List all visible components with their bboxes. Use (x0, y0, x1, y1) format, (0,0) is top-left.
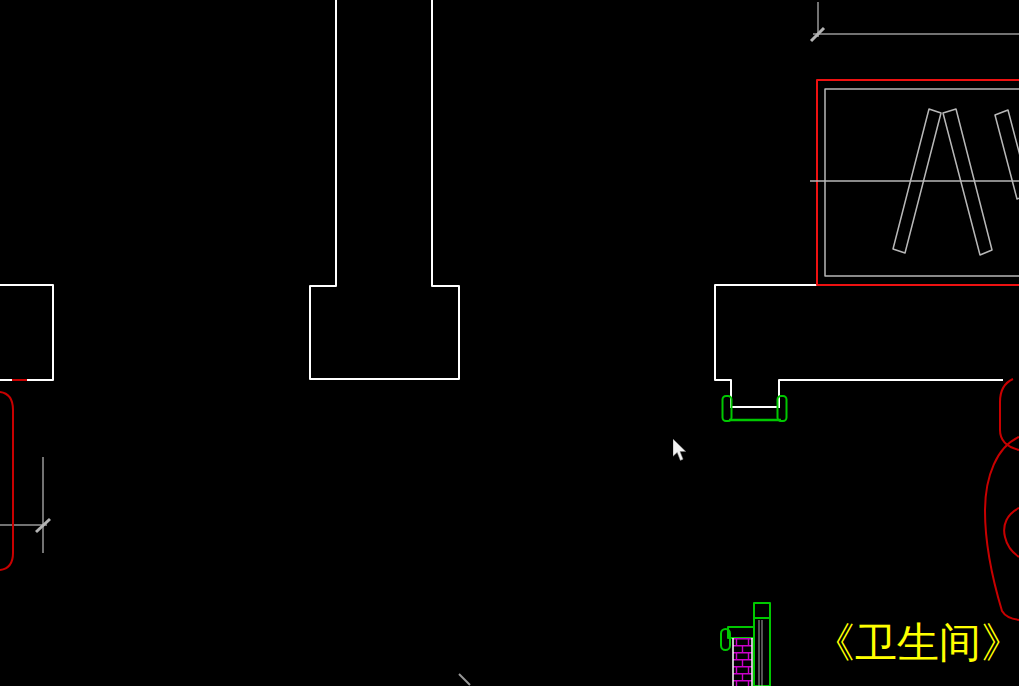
window-right-jamb-and-wall[interactable] (779, 380, 1003, 408)
right-wall-outline[interactable] (715, 285, 817, 408)
dim-tick-bottom[interactable] (459, 674, 470, 685)
hatch-bar-2[interactable] (943, 109, 992, 255)
cad-drawing-layer (0, 0, 1019, 686)
left-curved-bracket[interactable] (0, 392, 13, 570)
left-wall-corner[interactable] (0, 285, 53, 380)
hatch-bar-3[interactable] (995, 110, 1019, 199)
brick-column-hatch[interactable] (733, 638, 752, 686)
room-title-text[interactable]: 《卫生间》 (813, 620, 1019, 666)
inner-panel-rect[interactable] (825, 89, 1019, 276)
right-arc-inner[interactable] (1004, 508, 1019, 557)
red-room-outline[interactable] (817, 80, 1019, 285)
fixture-top-bar[interactable] (728, 627, 754, 638)
right-arc-outer[interactable] (985, 437, 1019, 620)
column-shaft-and-footing[interactable] (310, 0, 459, 379)
cad-canvas[interactable]: 《卫生间》 (0, 0, 1019, 686)
